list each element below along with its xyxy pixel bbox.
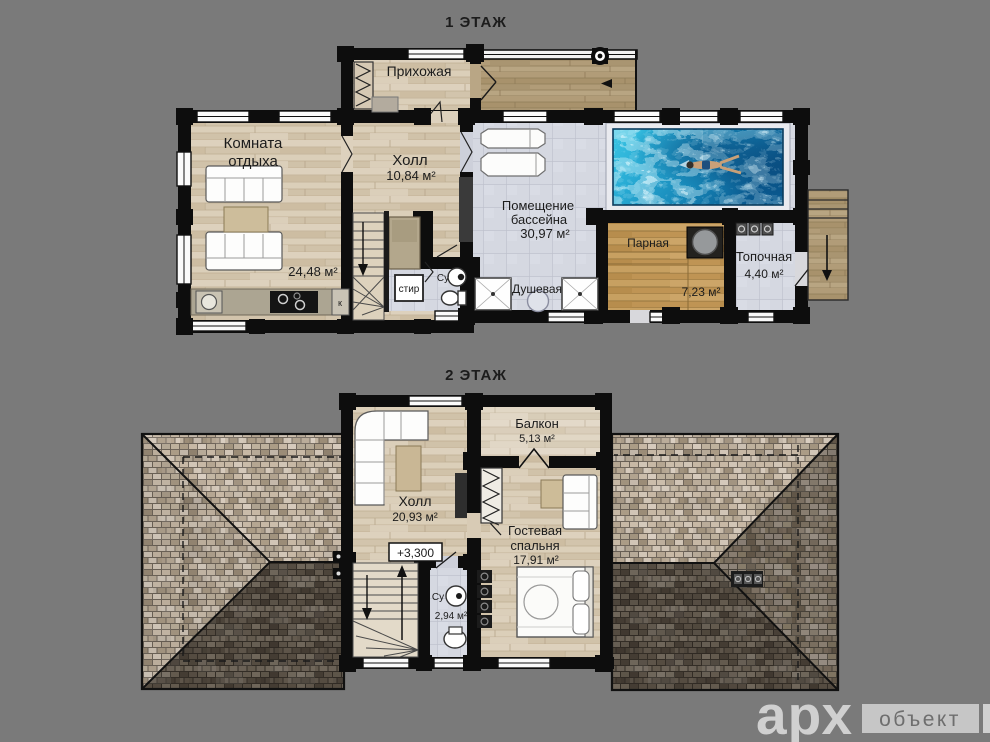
svg-text:10,84 м²: 10,84 м² xyxy=(386,168,436,183)
svg-text:объект: объект xyxy=(879,708,961,731)
svg-text:Су: Су xyxy=(432,592,444,603)
svg-text:30,97 м²: 30,97 м² xyxy=(520,226,570,241)
svg-text:бассейна: бассейна xyxy=(511,212,568,227)
svg-text:Парная: Парная xyxy=(627,236,669,250)
svg-text:20,93 м²: 20,93 м² xyxy=(392,510,438,524)
svg-text:7,23 м²: 7,23 м² xyxy=(682,285,721,299)
svg-text:17,91 м²: 17,91 м² xyxy=(513,553,559,567)
svg-text:к: к xyxy=(338,298,342,308)
svg-text:Душевая: Душевая xyxy=(512,282,562,296)
svg-text:Помещение: Помещение xyxy=(502,198,574,213)
svg-text:стир: стир xyxy=(399,284,420,295)
svg-text:1 ЭТАЖ: 1 ЭТАЖ xyxy=(445,14,507,31)
svg-text:арх: арх xyxy=(756,684,853,742)
svg-text:2 ЭТАЖ: 2 ЭТАЖ xyxy=(445,367,507,384)
svg-text:Комната: Комната xyxy=(224,135,283,152)
svg-text:+3,300: +3,300 xyxy=(397,546,434,560)
svg-text:Прихожая: Прихожая xyxy=(387,63,452,79)
svg-text:Су: Су xyxy=(437,273,449,284)
svg-text:2,94 м²: 2,94 м² xyxy=(435,611,468,622)
svg-text:Балкон: Балкон xyxy=(515,416,559,431)
svg-text:24,48 м²: 24,48 м² xyxy=(288,264,338,279)
svg-text:Топочная: Топочная xyxy=(736,249,792,264)
svg-text:отдыха: отдыха xyxy=(228,153,278,170)
svg-text:Холл: Холл xyxy=(399,493,432,509)
svg-text:4,40 м²: 4,40 м² xyxy=(745,267,784,281)
svg-text:Холл: Холл xyxy=(392,152,427,169)
svg-text:Гостевая: Гостевая xyxy=(508,523,562,538)
svg-text:5,13 м²: 5,13 м² xyxy=(519,433,555,445)
svg-text:спальня: спальня xyxy=(510,538,559,553)
